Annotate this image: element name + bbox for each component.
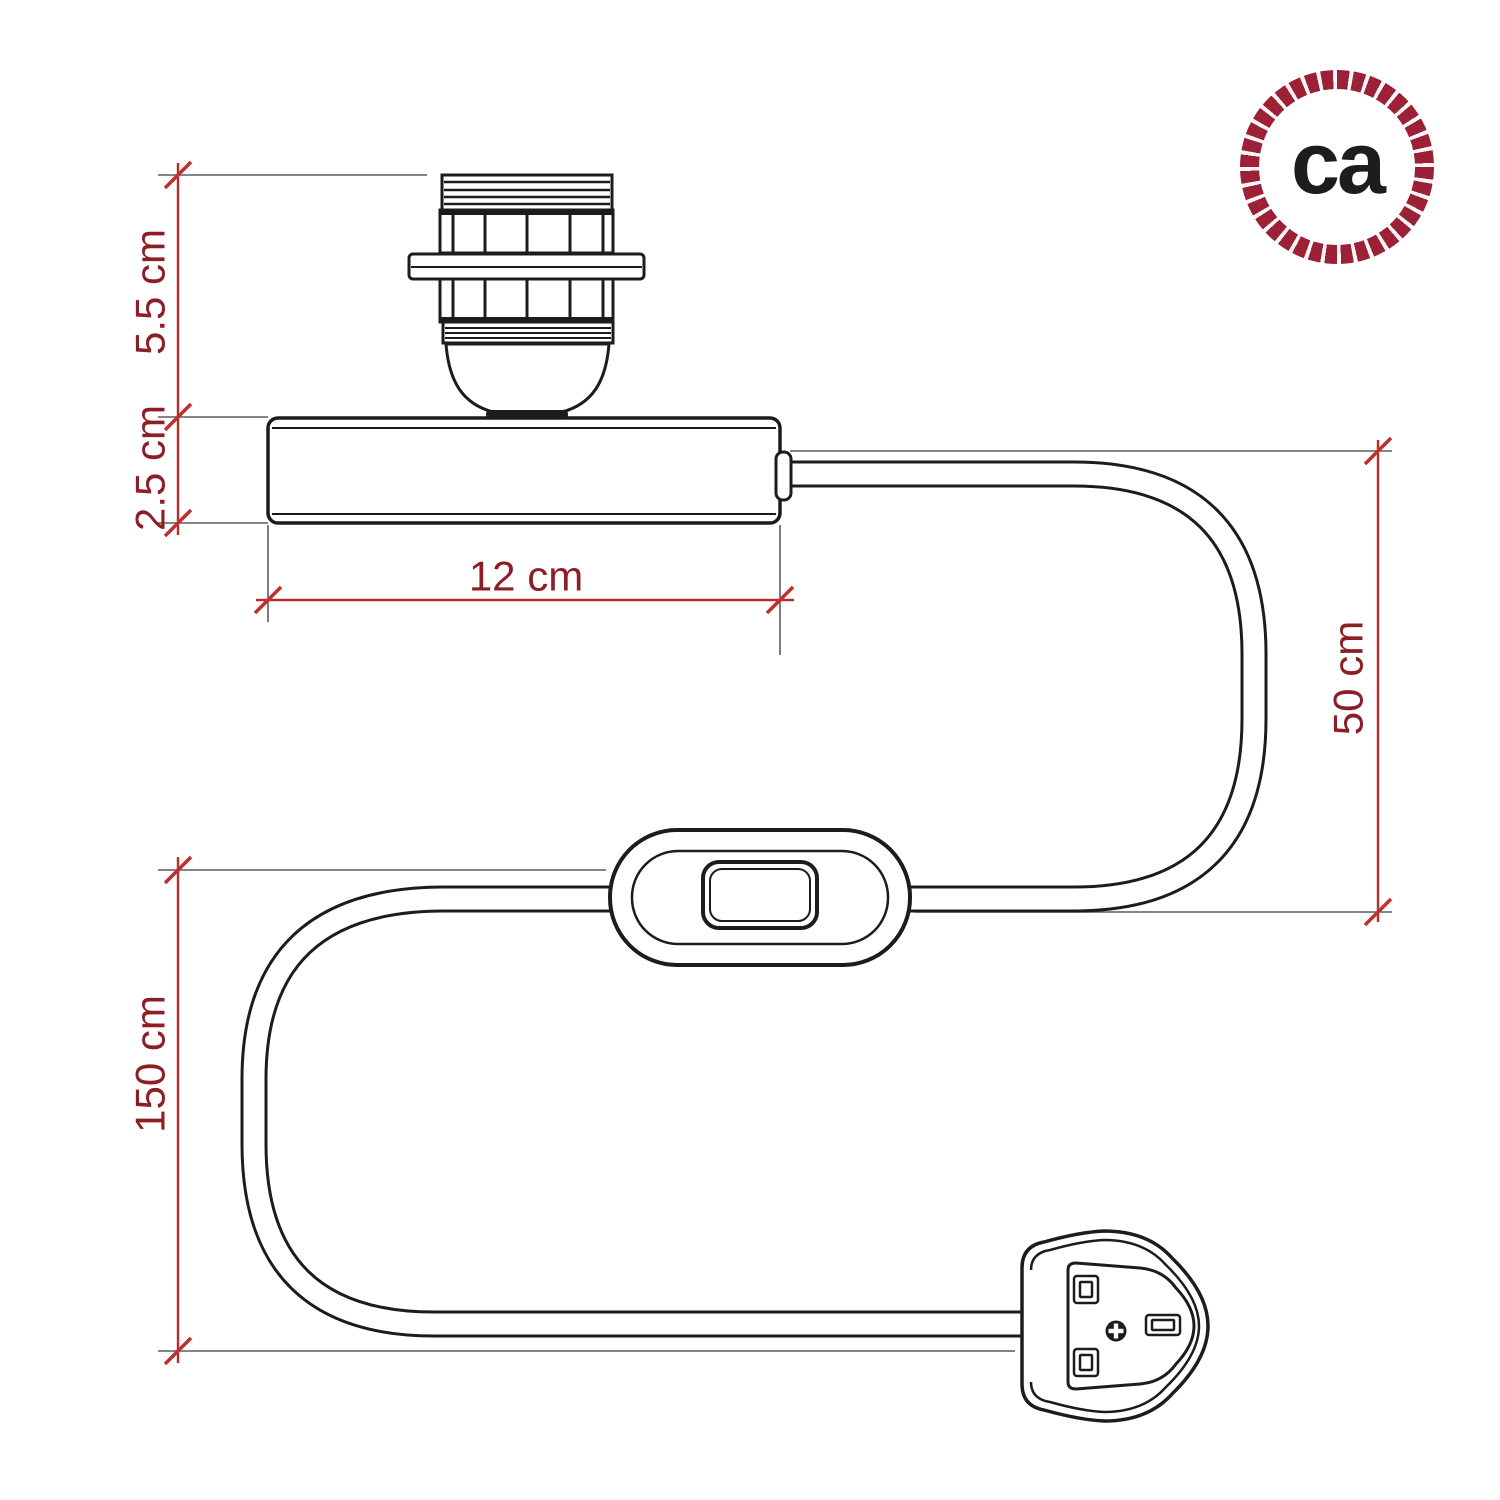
brand-logo: ca — [1240, 70, 1434, 264]
uk-plug — [1022, 1231, 1208, 1421]
plug-screw-slot-v — [1114, 1324, 1118, 1339]
label-base-width: 12 cm — [469, 553, 583, 600]
lamp-holder — [409, 175, 644, 419]
dimension-labels: 5.5 cm 2.5 cm 12 cm 50 cm 150 cm — [127, 229, 1372, 1133]
label-holder-to-switch: 50 cm — [1325, 621, 1372, 735]
holder-bowl — [446, 344, 609, 415]
inline-switch — [610, 830, 910, 965]
logo-text: ca — [1291, 119, 1383, 207]
dimension-lines — [178, 163, 1378, 1363]
extension-lines — [158, 175, 1392, 1351]
label-socket-height: 5.5 cm — [127, 229, 174, 355]
technical-diagram-page: 5.5 cm 2.5 cm 12 cm 50 cm 150 cm ca — [0, 0, 1500, 1500]
plug-pin-top-inner — [1080, 1282, 1092, 1297]
label-total-cable: 150 cm — [127, 995, 174, 1133]
cable-lower-segment-core — [254, 899, 1045, 1324]
switch-rocker-inner-line — [710, 869, 810, 921]
label-base-height: 2.5 cm — [127, 405, 174, 531]
plug-pin-right-inner — [1152, 1320, 1174, 1330]
holder-foot — [486, 410, 568, 419]
cable-gland — [776, 452, 791, 500]
lamp-base — [268, 418, 791, 523]
base-body — [268, 418, 780, 523]
cable-lower-segment-outline — [254, 899, 1045, 1324]
dimension-ticks — [165, 162, 1391, 1364]
plug-pin-bottom-inner — [1080, 1355, 1092, 1370]
